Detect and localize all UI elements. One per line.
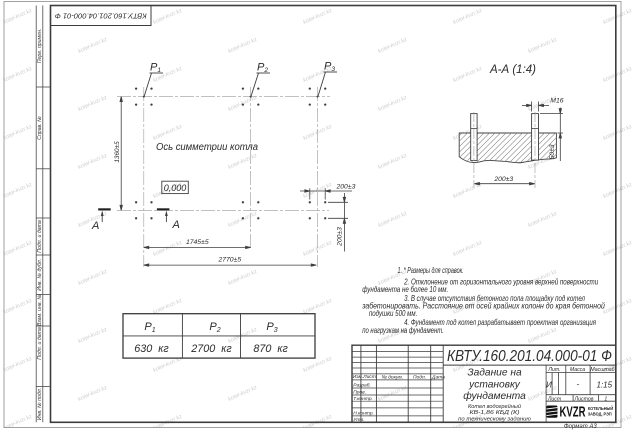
svg-text:Подп.: Подп.: [413, 374, 426, 380]
svg-text:-: -: [576, 380, 579, 389]
svg-text:2700 кг: 2700 кг: [190, 343, 232, 355]
svg-text:1360±5: 1360±5: [114, 141, 121, 163]
svg-text:Перв. примен.: Перв. примен.: [37, 29, 43, 63]
svg-text:Инв. № подл.: Инв. № подл.: [37, 388, 43, 420]
svg-text:KVZR: KVZR: [560, 405, 586, 421]
svg-text:№ докум.: № докум.: [382, 374, 404, 380]
svg-text:0,000: 0,000: [164, 183, 187, 193]
svg-text:Лист: Лист: [547, 396, 562, 402]
svg-text:1:15: 1:15: [597, 381, 613, 390]
svg-text:1: 1: [604, 396, 607, 402]
svg-text:Инв. № дубл.: Инв. № дубл.: [37, 259, 43, 291]
svg-text:Н.контр.: Н.контр.: [353, 410, 374, 416]
svg-text:Дата: Дата: [431, 374, 445, 380]
svg-text:1. * Размеры для справок.: 1. * Размеры для справок.: [398, 266, 464, 276]
svg-text:Взам. инв. №: Взам. инв. №: [37, 294, 43, 326]
svg-text:Т.контр.: Т.контр.: [353, 396, 373, 402]
svg-text:Справ. №: Справ. №: [37, 116, 43, 140]
svg-text:Масса: Масса: [570, 367, 585, 373]
svg-text:Лит.: Лит.: [547, 367, 560, 373]
svg-text:Масштаб: Масштаб: [590, 367, 615, 373]
svg-text:И: И: [546, 381, 552, 390]
svg-text:Листов: Листов: [574, 396, 594, 402]
svg-text:Изм.Лист: Изм.Лист: [353, 374, 376, 380]
svg-text:Формат А3: Формат А3: [564, 424, 597, 430]
svg-text:Пров.: Пров.: [353, 389, 366, 395]
svg-text:КОТЕЛЬНЫЙ: КОТЕЛЬНЫЙ: [588, 404, 614, 411]
svg-text:М16: М16: [550, 98, 563, 105]
svg-text:200±3: 200±3: [336, 184, 356, 191]
svg-text:А: А: [91, 220, 99, 232]
svg-text:ЗАВОД, РЭП: ЗАВОД, РЭП: [588, 411, 612, 416]
svg-text:Котел водогрейный: Котел водогрейный: [468, 403, 522, 410]
svg-text:Утв.: Утв.: [353, 417, 364, 423]
svg-text:КВ-1,86 КБД (К): КВ-1,86 КБД (К): [470, 410, 520, 416]
svg-text:Подп. и дата: Подп. и дата: [37, 327, 43, 360]
svg-text:1745±5: 1745±5: [186, 239, 209, 246]
svg-text:Задание на: Задание на: [467, 367, 522, 378]
svg-text:2770±5: 2770±5: [217, 256, 241, 263]
svg-text:КВТУ.160.201.04.000-01 Ф: КВТУ.160.201.04.000-01 Ф: [447, 348, 612, 365]
svg-text:200±3: 200±3: [336, 227, 343, 247]
svg-text:200±3: 200±3: [493, 176, 513, 183]
svg-text:А: А: [172, 219, 180, 231]
svg-text:630 кг: 630 кг: [134, 343, 169, 355]
svg-text:по техническому заданию: по техническому заданию: [458, 416, 531, 422]
svg-text:А-А (1:4): А-А (1:4): [489, 64, 536, 76]
svg-text:50±3: 50±3: [549, 144, 556, 159]
svg-text:установку: установку: [468, 379, 521, 390]
svg-text:фундамента: фундамента: [463, 390, 526, 402]
svg-text:Разраб.: Разраб.: [353, 382, 371, 388]
svg-text:по нагрузкам на фундамент.: по нагрузкам на фундамент.: [362, 325, 444, 335]
svg-text:870 кг: 870 кг: [253, 343, 288, 355]
svg-text:КВТУ.160.201.04.000-01 Ф: КВТУ.160.201.04.000-01 Ф: [55, 12, 147, 21]
svg-text:Ось симметрии котла: Ось симметрии котла: [156, 142, 258, 153]
svg-text:Подп. и дата: Подп. и дата: [37, 220, 43, 253]
